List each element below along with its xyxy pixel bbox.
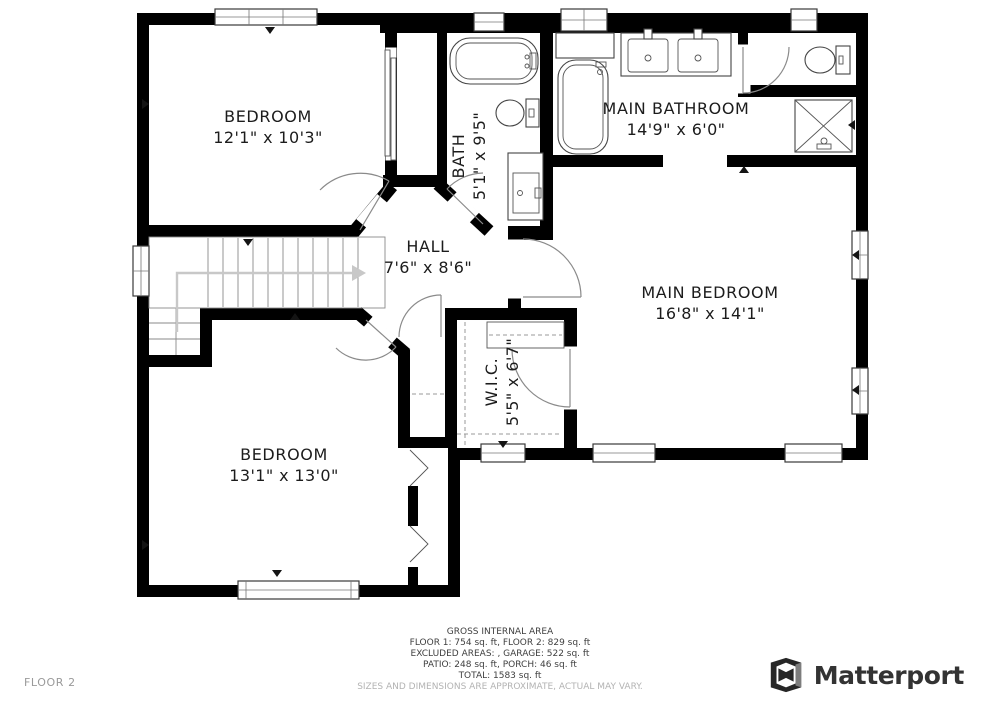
room-dims: 13'1" x 13'0"	[229, 466, 338, 487]
room-label-bath: BATH 5'1" x 9'5"	[449, 112, 491, 200]
door-main-bedroom	[523, 239, 581, 297]
floor-label: FLOOR 2	[24, 676, 76, 689]
window	[791, 9, 817, 31]
room-name: BATH	[449, 112, 470, 200]
room-name: W.I.C.	[482, 338, 503, 426]
window	[238, 581, 359, 599]
staircase	[149, 237, 385, 355]
toilet	[496, 99, 539, 127]
window	[785, 444, 842, 462]
room-label-main-bedroom: MAIN BEDROOM 16'8" x 14'1"	[641, 283, 778, 325]
room-dims: 5'5" x 6'7"	[503, 338, 524, 426]
room-name: MAIN BEDROOM	[641, 283, 778, 304]
room-label-hall: HALL 7'6" x 8'6"	[384, 237, 472, 279]
room-label-main-bathroom: MAIN BATHROOM 14'9" x 6'0"	[603, 99, 750, 141]
room-name: MAIN BATHROOM	[603, 99, 750, 120]
footer-line-floors: FLOOR 1: 754 sq. ft, FLOOR 2: 829 sq. ft	[0, 638, 1000, 649]
double-vanity	[621, 29, 731, 76]
room-dims: 12'1" x 10'3"	[213, 128, 322, 149]
window	[474, 13, 504, 31]
bathtub	[450, 38, 538, 84]
window	[561, 9, 607, 31]
shower	[795, 100, 852, 152]
window	[133, 246, 149, 296]
room-label-bedroom-1: BEDROOM 12'1" x 10'3"	[213, 107, 322, 149]
matterport-logo: Matterport	[767, 656, 964, 694]
room-dims: 5'1" x 9'5"	[470, 112, 491, 200]
bathtub	[558, 60, 608, 154]
room-label-bedroom-2: BEDROOM 13'1" x 13'0"	[229, 445, 338, 487]
toilet	[805, 46, 850, 74]
matterport-logo-icon	[767, 656, 805, 694]
room-dims: 7'6" x 8'6"	[384, 258, 472, 279]
sink-vanity	[508, 153, 543, 220]
room-name: HALL	[384, 237, 472, 258]
room-dims: 16'8" x 14'1"	[641, 304, 778, 325]
room-dims: 14'9" x 6'0"	[603, 120, 750, 141]
matterport-logo-text: Matterport	[814, 661, 964, 690]
counter	[556, 33, 614, 58]
room-label-wic: W.I.C. 5'5" x 6'7"	[482, 338, 524, 426]
floorplan-page: BEDROOM 12'1" x 10'3" BATH 5'1" x 9'5" M…	[0, 0, 1000, 707]
window	[593, 444, 655, 462]
room-name: BEDROOM	[213, 107, 322, 128]
door-hall-vestibule	[399, 295, 441, 337]
window	[215, 9, 317, 25]
footer-title: GROSS INTERNAL AREA	[0, 627, 1000, 638]
room-name: BEDROOM	[229, 445, 338, 466]
